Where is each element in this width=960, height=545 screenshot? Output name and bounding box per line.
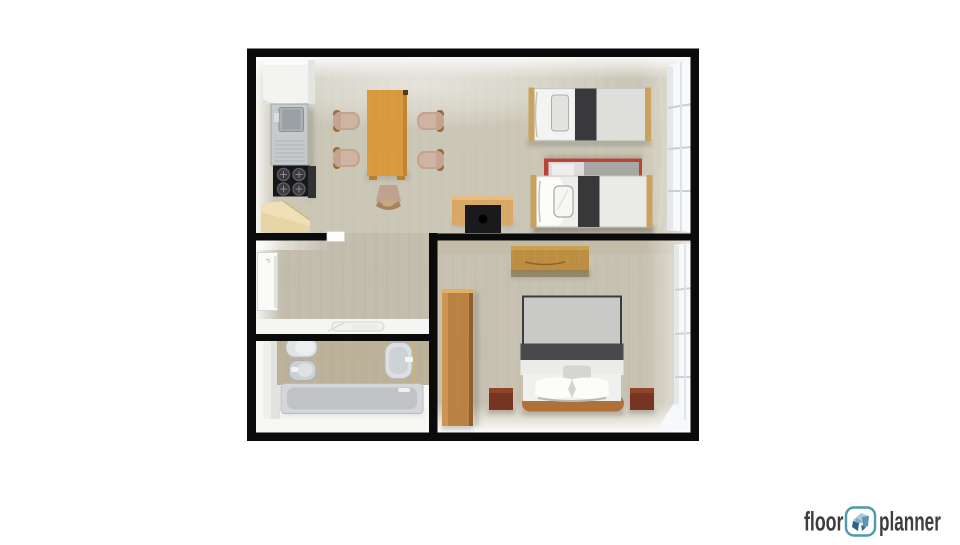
svg-text:floor: floor bbox=[804, 506, 843, 536]
svg-text:planner: planner bbox=[879, 506, 941, 536]
